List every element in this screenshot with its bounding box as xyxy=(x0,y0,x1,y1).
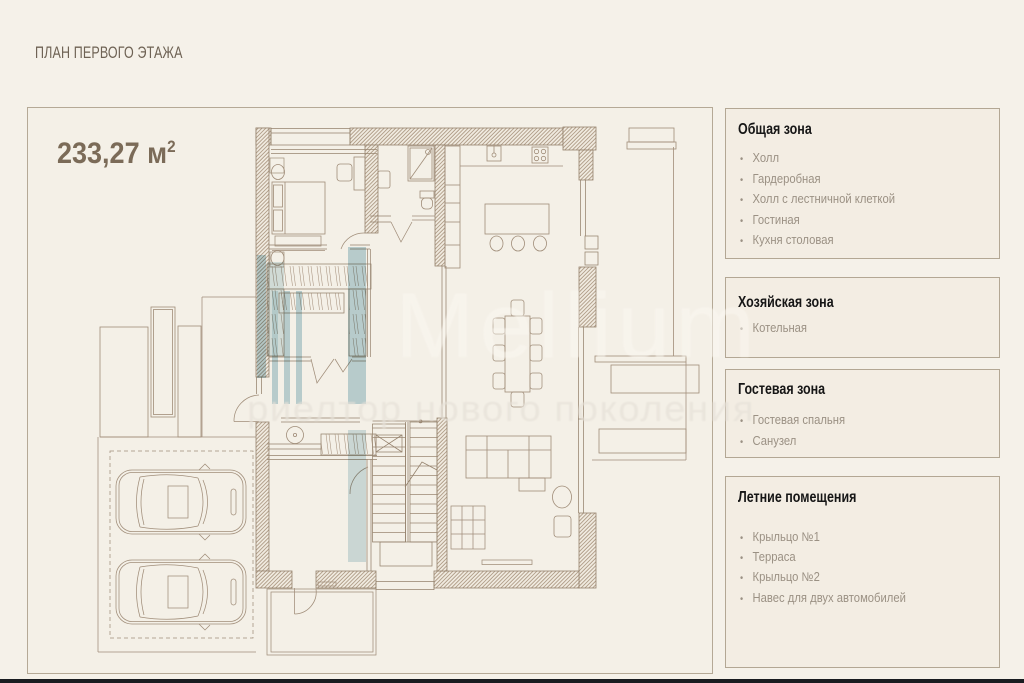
svg-text:Mellium: Mellium xyxy=(395,275,760,377)
svg-text:риелтор нового поколения: риелтор нового поколения xyxy=(247,388,755,429)
